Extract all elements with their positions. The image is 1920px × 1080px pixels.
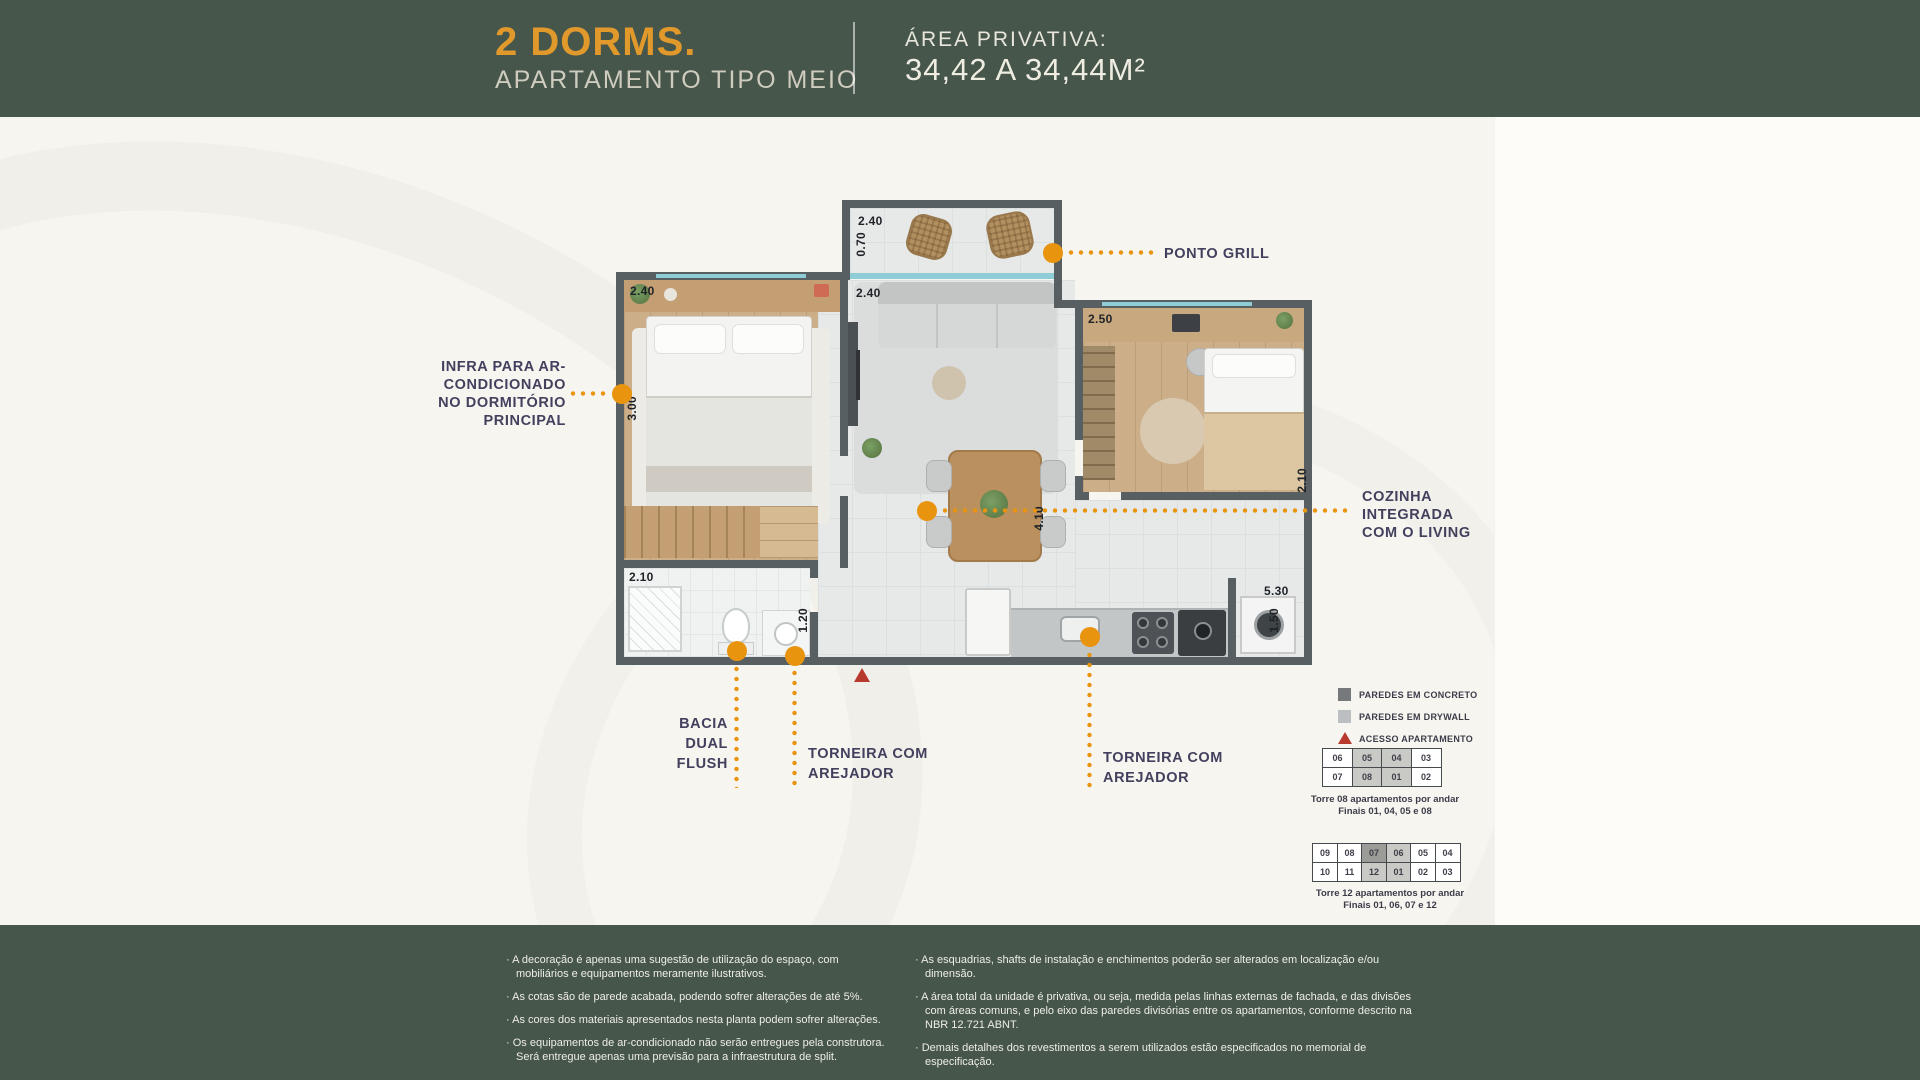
disclaimer-item: A decoração é apenas uma sugestão de uti… xyxy=(506,953,888,981)
callout-text: INFRA PARA AR- xyxy=(420,358,566,376)
floor-plan: 2.40 0.70 2.40 2.40 2.50 3.00 2.10 1.20 … xyxy=(616,200,1312,666)
tower-12-finals: Finais 01, 06, 07 e 12 xyxy=(1295,900,1485,911)
dim-bedroom2-depth: 2.10 xyxy=(1295,468,1309,493)
tower-08-finals: Finais 01, 04, 05 e 08 xyxy=(1300,806,1470,817)
callout-text: COM O LIVING xyxy=(1362,524,1471,542)
fridge xyxy=(965,588,1011,656)
unit-cell: 05 xyxy=(1410,843,1436,863)
wall xyxy=(840,280,848,456)
callout-line xyxy=(1066,250,1154,255)
unit-cell: 08 xyxy=(1337,843,1363,863)
dim-kitchen-depth: 1.50 xyxy=(1267,608,1281,633)
wall xyxy=(842,200,850,278)
callout-line xyxy=(792,668,797,788)
wardrobe xyxy=(624,506,760,558)
oven-dial xyxy=(1194,622,1212,640)
content-background-right xyxy=(1494,117,1920,925)
dim-balcony-depth: 0.70 xyxy=(854,232,868,257)
tower-row: 09 08 07 06 05 04 xyxy=(1312,843,1459,862)
callout-text: NO DORMITÓRIO xyxy=(420,394,566,412)
callout-torneira-cozinha: TORNEIRA COM AREJADOR xyxy=(1103,748,1223,788)
unit-cell: 03 xyxy=(1411,748,1442,768)
disclaimer-item: Os equipamentos de ar-condicionado não s… xyxy=(506,1036,888,1064)
sofa-back xyxy=(878,282,1056,304)
tower-row: 06 05 04 03 xyxy=(1322,748,1440,767)
tower-08-diagram: 06 05 04 03 07 08 01 02 xyxy=(1322,748,1440,785)
callout-text: AREJADOR xyxy=(1103,768,1223,788)
table-plant xyxy=(980,490,1008,518)
unit-cell: 01 xyxy=(1386,862,1412,882)
pouf xyxy=(932,366,966,400)
bedroom1-shelf xyxy=(624,280,840,312)
burner xyxy=(1156,636,1168,648)
callout-ponto-grill: PONTO GRILL xyxy=(1164,245,1269,263)
unit-cell: 07 xyxy=(1361,843,1387,863)
callout-dot-cozinha xyxy=(917,501,937,521)
burner xyxy=(1137,636,1149,648)
wall xyxy=(616,560,818,568)
plant xyxy=(862,438,882,458)
page-subtitle: APARTAMENTO TIPO MEIO xyxy=(495,66,858,95)
callout-text: COZINHA xyxy=(1362,488,1471,506)
tv-screen xyxy=(856,350,860,400)
unit-cell: 02 xyxy=(1411,767,1442,787)
unit-cell: 07 xyxy=(1322,767,1353,787)
callout-text: FLUSH xyxy=(640,754,728,774)
tower-row: 07 08 01 02 xyxy=(1322,767,1440,786)
tv-decor xyxy=(814,284,829,297)
unit-cell: 03 xyxy=(1435,862,1461,882)
tower-12-diagram: 09 08 07 06 05 04 10 11 12 01 02 03 xyxy=(1312,843,1459,880)
disclaimer-item: As esquadrias, shafts de instalação e en… xyxy=(915,953,1430,981)
shower-box xyxy=(628,586,682,652)
wall xyxy=(810,568,818,578)
callout-text: AREJADOR xyxy=(808,764,928,784)
disclaimer-column-right: As esquadrias, shafts de instalação e en… xyxy=(915,953,1430,1078)
legend-access-triangle-icon xyxy=(1338,732,1352,744)
disclaimer-column-left: A decoração é apenas uma sugestão de uti… xyxy=(506,953,888,1073)
private-area-label: ÁREA PRIVATIVA: xyxy=(905,28,1108,52)
callout-text: DUAL xyxy=(640,734,728,754)
disclaimer-item: A área total da unidade é privativa, ou … xyxy=(915,990,1430,1032)
wall xyxy=(1228,578,1236,665)
wall xyxy=(1121,492,1312,500)
wardrobe xyxy=(1083,346,1115,480)
page-edge-divider xyxy=(1494,117,1495,925)
wall xyxy=(616,657,1312,665)
unit-cell: 01 xyxy=(1381,767,1412,787)
callout-torneira-banheiro: TORNEIRA COM AREJADOR xyxy=(808,744,928,784)
callout-dot-torneira-banheiro xyxy=(785,646,805,666)
unit-cell: 04 xyxy=(1381,748,1412,768)
dining-chair xyxy=(1040,460,1066,492)
unit-cell: 12 xyxy=(1361,862,1387,882)
burner xyxy=(1137,617,1149,629)
unit-cell: 02 xyxy=(1410,862,1436,882)
header-divider xyxy=(853,22,855,94)
callout-text: PONTO GRILL xyxy=(1164,246,1269,262)
unit-cell: 06 xyxy=(1322,748,1353,768)
callout-line xyxy=(734,664,739,788)
callout-line xyxy=(1087,650,1092,788)
wall xyxy=(616,272,624,665)
legend-access-label: ACESSO APARTAMENTO xyxy=(1359,734,1473,744)
disclaimer-item: Demais detalhes dos revestimentos a sere… xyxy=(915,1041,1430,1069)
dining-chair xyxy=(926,460,952,492)
callout-text: PRINCIPAL xyxy=(420,412,566,430)
callout-line xyxy=(940,508,1352,513)
dim-bedroom1-width: 2.40 xyxy=(630,284,655,298)
tower-08-caption: Torre 08 apartamentos por andar xyxy=(1300,794,1470,805)
bedroom2-rug xyxy=(1140,398,1206,464)
unit-cell: 10 xyxy=(1312,862,1338,882)
sofa-seat xyxy=(878,304,1056,348)
balcony-glass-door xyxy=(850,273,1054,279)
legend-concrete-label: PAREDES EM CONCRETO xyxy=(1359,690,1477,700)
laptop xyxy=(1172,314,1200,332)
burner xyxy=(1156,617,1168,629)
plant xyxy=(1276,312,1293,329)
unit-cell: 06 xyxy=(1386,843,1412,863)
dim-balcony-width: 2.40 xyxy=(858,214,883,228)
header-band: 2 DORMS. APARTAMENTO TIPO MEIO ÁREA PRIV… xyxy=(0,0,1920,117)
pillow xyxy=(732,324,804,354)
wardrobe-shelves xyxy=(760,506,818,558)
callout-dot-ponto-grill xyxy=(1043,243,1063,263)
vase xyxy=(664,288,677,301)
private-area-value: 34,42 A 34,44M² xyxy=(905,52,1146,88)
washbasin xyxy=(774,622,798,646)
bedroom1-window xyxy=(656,274,806,278)
bed2-duvet xyxy=(1204,412,1304,490)
apartment-floorplan-page: 2 DORMS. APARTAMENTO TIPO MEIO ÁREA PRIV… xyxy=(0,0,1920,1080)
apartment-access-icon xyxy=(854,668,870,682)
disclaimer-item: As cores dos materiais apresentados nest… xyxy=(506,1013,888,1027)
disclaimer-item: As cotas são de parede acabada, podendo … xyxy=(506,990,888,1004)
legend-drywall-label: PAREDES EM DRYWALL xyxy=(1359,712,1470,722)
wall xyxy=(810,612,818,665)
tower-row: 10 11 12 01 02 03 xyxy=(1312,862,1459,881)
unit-cell: 04 xyxy=(1435,843,1461,863)
callout-dot-torneira-cozinha xyxy=(1080,627,1100,647)
tower-12-caption: Torre 12 apartamentos por andar xyxy=(1295,888,1485,899)
dining-chair xyxy=(926,516,952,548)
unit-cell: 11 xyxy=(1337,862,1363,882)
dim-kitchen-width: 5.30 xyxy=(1264,584,1289,598)
wall xyxy=(840,496,848,568)
dim-bath-width: 2.10 xyxy=(629,570,654,584)
legend-drywall-swatch xyxy=(1338,710,1351,723)
bed-throw xyxy=(646,466,812,492)
wall xyxy=(1075,308,1083,440)
callout-cozinha: COZINHA INTEGRADA COM O LIVING xyxy=(1362,488,1471,542)
callout-infra-ac: INFRA PARA AR- CONDICIONADO NO DORMITÓRI… xyxy=(420,358,566,430)
sofa-cushion-gap xyxy=(936,304,938,348)
wall xyxy=(842,200,1062,208)
callout-dot-bacia xyxy=(727,641,747,661)
callout-text: CONDICIONADO xyxy=(420,376,566,394)
unit-cell: 09 xyxy=(1312,843,1338,863)
unit-cell: 08 xyxy=(1352,767,1383,787)
footer-band: A decoração é apenas uma sugestão de uti… xyxy=(0,925,1920,1080)
callout-text: TORNEIRA COM xyxy=(1103,748,1223,768)
legend-concrete-swatch xyxy=(1338,688,1351,701)
callout-text: BACIA xyxy=(640,714,728,734)
callout-bacia: BACIA DUAL FLUSH xyxy=(640,714,728,774)
toilet xyxy=(722,608,750,644)
wall xyxy=(1075,492,1089,500)
callout-text: INTEGRADA xyxy=(1362,506,1471,524)
dim-bedroom2-width: 2.50 xyxy=(1088,312,1113,326)
bedroom2-window xyxy=(1102,302,1252,306)
pillow xyxy=(654,324,726,354)
sofa-cushion-gap xyxy=(996,304,998,348)
unit-cell: 05 xyxy=(1352,748,1383,768)
page-title: 2 DORMS. xyxy=(495,20,696,65)
pillow xyxy=(1212,354,1296,378)
callout-line xyxy=(568,391,610,396)
callout-text: TORNEIRA COM xyxy=(808,744,928,764)
dim-bath-depth: 1.20 xyxy=(796,608,810,633)
dim-living-width: 2.40 xyxy=(856,286,881,300)
callout-dot-infra-ac xyxy=(612,384,632,404)
